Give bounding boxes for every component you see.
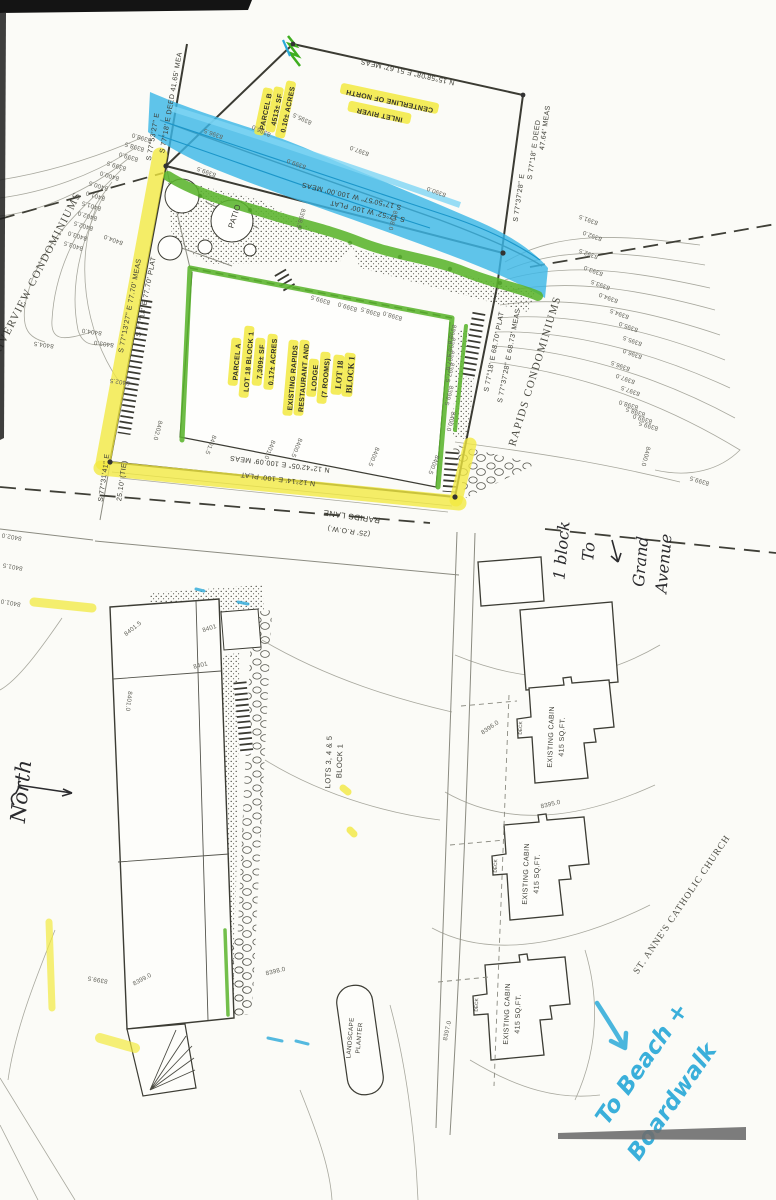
contour-label: 8393.5 <box>590 278 612 292</box>
scan-edge-left <box>0 13 6 440</box>
contour-label: 8403.0 <box>93 339 114 349</box>
contour-label: 8395.5 <box>291 111 313 126</box>
dashed-line-ne <box>530 224 776 267</box>
contour-label: 8398.0 <box>131 131 153 144</box>
road-name: RAPIDS LANE <box>323 508 381 525</box>
survey-labels: N 15°58'08" E 51.67' MEAS S 77°18' E DEE… <box>0 51 733 1058</box>
contour-label: 8399.5 <box>87 974 108 984</box>
contour-label: 8400.0 <box>99 169 121 182</box>
handwritten-avenue: Avenue <box>651 533 675 596</box>
contour-label: 8401.0 <box>0 597 21 607</box>
church-label: ST. ANNE'S CATHOLIC CHURCH <box>632 834 733 977</box>
scan-edge-top <box>0 0 252 13</box>
contour-label: 8397.0 <box>349 144 371 158</box>
contour-label: 8404.0 <box>81 327 102 337</box>
contour-label: 8400.5 <box>88 179 110 192</box>
contour-label: 8393.0 <box>583 264 605 278</box>
contour-label: 8394.0 <box>598 291 620 305</box>
cabin1-label-2: 415 SQ.FT. <box>558 717 566 757</box>
structure-rect-1 <box>478 557 544 606</box>
contour-label: 8400.0 <box>639 446 651 468</box>
plat-map-svg: N 15°58'08" E 51.67' MEAS S 77°18' E DEE… <box>0 0 776 1200</box>
beach-arrow <box>597 1003 626 1048</box>
contour-label: 8392.0 <box>582 229 604 243</box>
contour-label: 8404.5 <box>33 340 54 350</box>
contour-label: 8398.0 <box>265 966 287 978</box>
cabin3-label-2: 415 SQ.FT. <box>514 994 522 1034</box>
green-corner-mark <box>288 36 300 66</box>
contour-label: 8399.5 <box>106 159 128 172</box>
contour-label: 8396.5 <box>610 359 632 373</box>
contour-label: 8395.0 <box>540 799 562 811</box>
contour-label: 8401.5 <box>2 561 23 571</box>
contour-label: 8396.0 <box>480 719 501 736</box>
deck-label-3: DECK <box>474 997 480 1011</box>
handwritten-1-block: 1 block <box>549 520 573 580</box>
scanned-plat-page: N 15°58'08" E 51.67' MEAS S 77°18' E DEE… <box>0 0 776 1200</box>
contour-label: 8402.0 <box>1 531 22 541</box>
cabin2-label-2: 415 SQ.FT. <box>533 854 541 894</box>
bearing-e-meas: S 77°37'28" E <box>512 173 527 222</box>
contour-label: 8403.0 <box>67 229 89 242</box>
handwritten-grand: Grand <box>629 536 652 588</box>
contour-label: 8402.0 <box>151 420 163 442</box>
lots-345-label-1: LOTS 3, 4 & 5 <box>323 735 334 788</box>
contour-label: 8395.5 <box>622 334 644 348</box>
contour-label: 8399.5 <box>689 474 711 487</box>
bearing-top-edge: N 15°58'08" E 51.67' MEAS <box>360 57 456 86</box>
deck-label-1: DECK <box>518 720 524 734</box>
contour-label: 8396.0 <box>622 347 644 361</box>
road-row: (25' R.O.W.) <box>327 524 371 537</box>
contour-label: 8391.5 <box>578 213 600 227</box>
deck-label-2: DECK <box>493 858 499 872</box>
lots-345-label-2: BLOCK 1 <box>334 744 344 779</box>
contour-label: 8404.0 <box>103 233 125 247</box>
handwritten-to: To <box>578 541 599 562</box>
lower-site <box>34 557 618 1097</box>
lane-south-edge <box>95 541 459 575</box>
contour-label: 8395.0 <box>618 320 640 334</box>
contour-label: 8397.5 <box>620 384 642 398</box>
grand-ave-arrow <box>611 540 621 562</box>
contour-label: 8397.0 <box>442 1020 453 1041</box>
handwritten-north: North <box>6 759 37 825</box>
